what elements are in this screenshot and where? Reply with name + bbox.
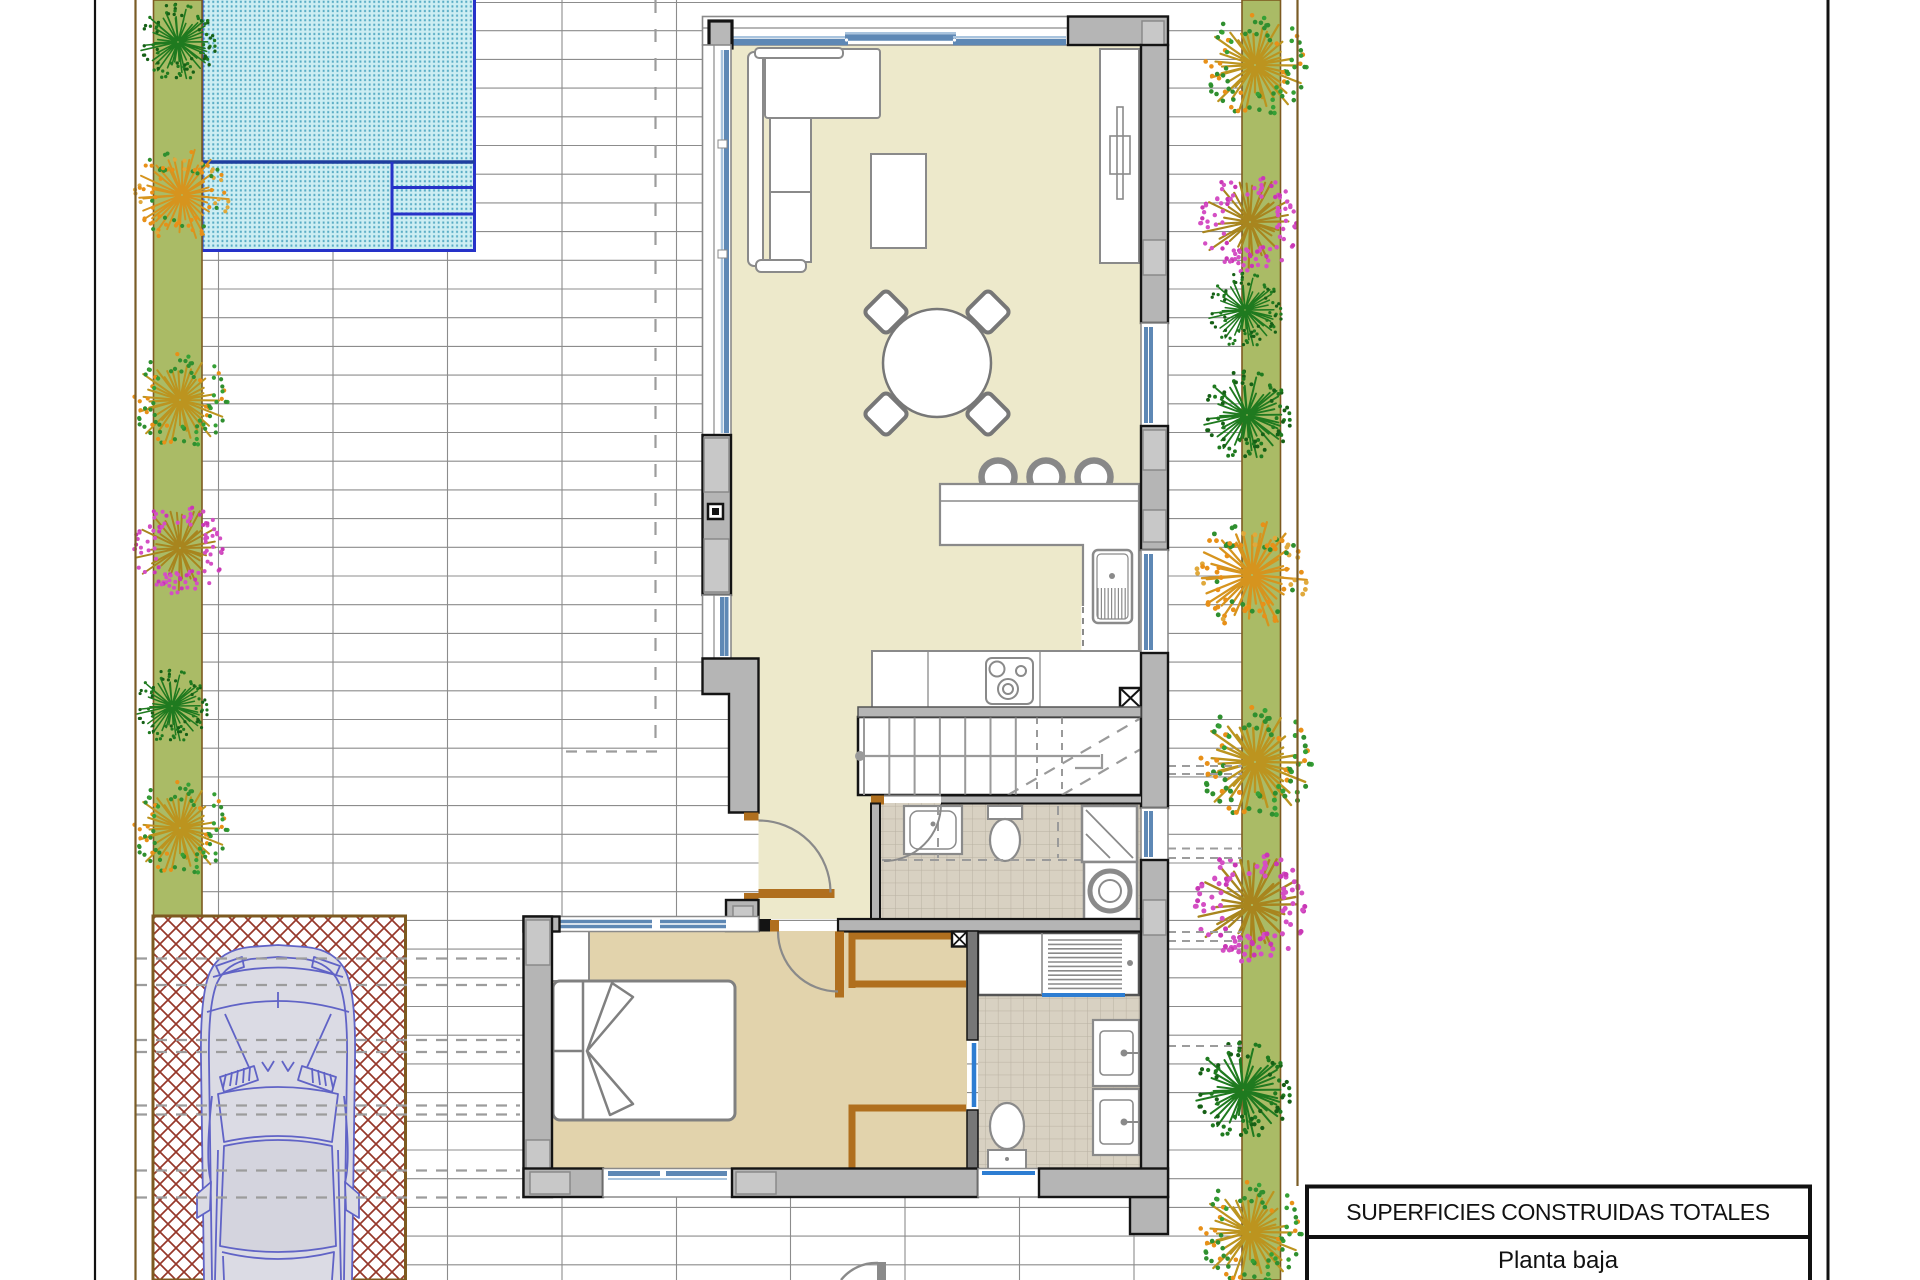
svg-text:SUPERFICIES CONSTRUIDAS TOTALE: SUPERFICIES CONSTRUIDAS TOTALES	[1346, 1199, 1769, 1225]
svg-text:Planta baja: Planta baja	[1498, 1247, 1619, 1274]
